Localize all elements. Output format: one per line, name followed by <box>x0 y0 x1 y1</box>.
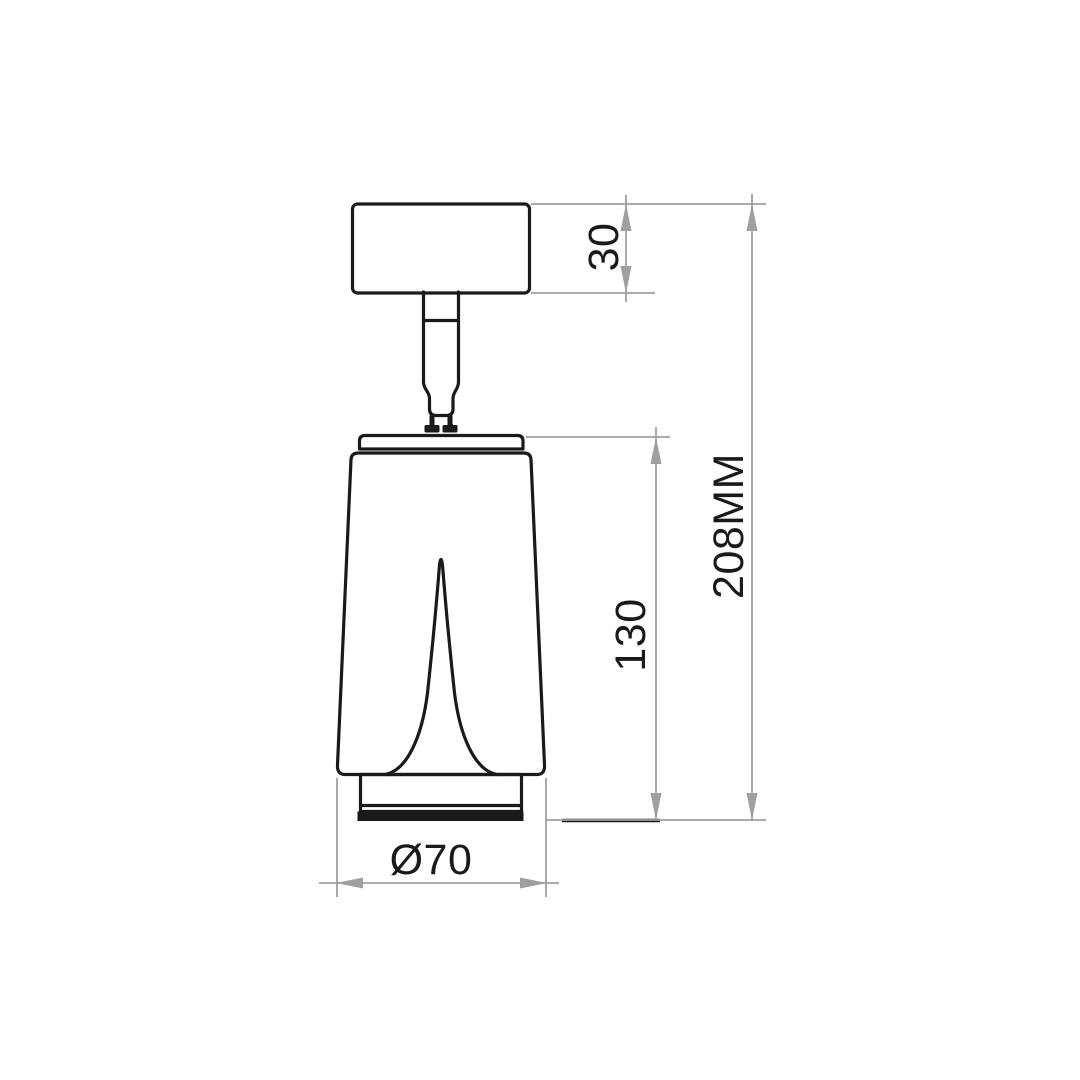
lamp-pin-left-icon <box>425 416 440 433</box>
dim-label-canopy-height: 30 <box>580 223 628 272</box>
lamp-pin-right-icon <box>443 416 458 433</box>
lamp-cap-plate <box>360 436 524 450</box>
dim-label-body-height: 130 <box>607 598 655 671</box>
arrow-down-icon <box>651 793 662 820</box>
dimension-annotations: 30 130 208MM Ø70 <box>319 194 766 897</box>
fixture-outline <box>337 204 660 821</box>
arrow-up-icon <box>747 204 758 231</box>
dim-label-overall-height: 208MM <box>705 453 753 599</box>
lamp-body <box>337 453 544 775</box>
ceiling-canopy <box>353 204 530 293</box>
dim-label-diameter: Ø70 <box>390 836 473 884</box>
petal-seam <box>385 560 497 775</box>
arrow-down-icon <box>747 793 758 820</box>
spotlight-dimension-diagram: 30 130 208MM Ø70 <box>0 0 1080 1080</box>
arrow-up-icon <box>651 437 662 464</box>
stem <box>424 292 459 416</box>
arrow-right-icon <box>520 878 547 889</box>
lamp-bottom-band <box>358 812 524 822</box>
technical-drawing-canvas: 30 130 208MM Ø70 <box>0 0 1080 1080</box>
arrow-left-icon <box>336 878 363 889</box>
